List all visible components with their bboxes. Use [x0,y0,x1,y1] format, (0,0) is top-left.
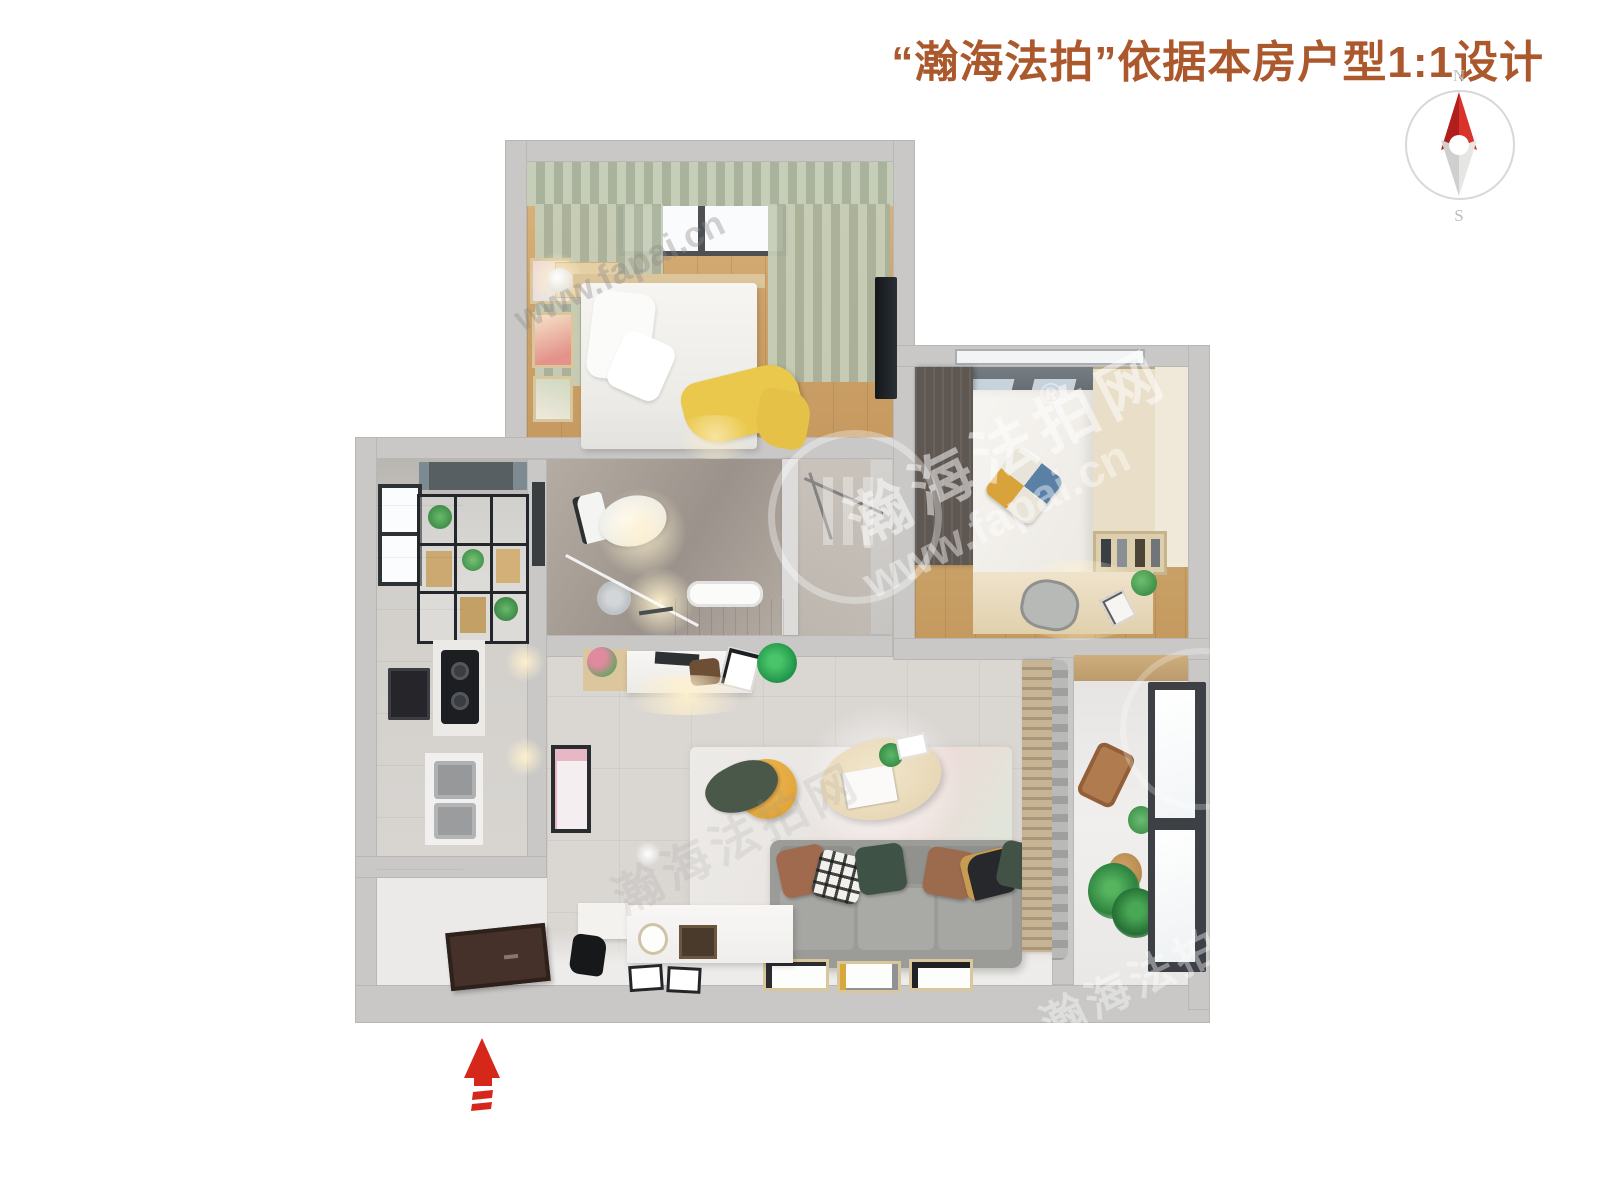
page: { "header": { "title": "“瀚海法拍”依据本房户型1:1设… [0,0,1600,1200]
shelf-plant [494,597,518,621]
toilet-bowl [594,489,672,554]
master-bedroom [505,140,915,459]
entry-door-mat [445,923,551,991]
shelf-plant [462,549,484,571]
kitchen-sink-basin [434,803,476,839]
kitchen-sink-basin [434,761,476,799]
bathroom-window [529,482,545,566]
leaning-frame [909,959,973,991]
burner [451,662,469,680]
entrance-arrow-bar [472,1090,493,1100]
throw-pillow-green [854,842,908,896]
emblem-column [843,477,853,545]
curtain-right-panel [768,204,890,382]
cooktop [441,650,479,724]
entrance-arrow-head [464,1038,500,1086]
vanity-basin [687,581,763,607]
wall-art [533,376,573,422]
living-room [527,635,1052,985]
bookshelf [1093,531,1167,575]
bed-throw-drape [752,386,813,452]
floor-frame-small [666,966,701,994]
floor-art [551,745,591,833]
built-in-oven [388,668,430,720]
wall-light [635,841,661,867]
floor-plan-rendering: www.fapai.cn 瀚海法拍网 ® www.fapai.cn 瀚海法拍网 … [0,0,1600,1200]
second-bedroom-window [955,349,1145,365]
burner [451,692,469,710]
sofa-seat-cushion [858,888,934,950]
window-pane [1155,830,1195,962]
desk-plant [1131,570,1157,596]
floor-frame-small [628,964,664,992]
shower-faucet [639,607,673,616]
books [1101,539,1111,567]
table-lamp [547,268,573,294]
emblem-column [863,477,873,545]
books [1135,539,1145,567]
books [1151,539,1160,567]
balcony-roller-blind [1022,660,1054,952]
leaning-frame [763,959,829,991]
door-handle-mark [504,954,518,959]
entrance-arrow-bar [471,1102,492,1111]
watermark-emblem-ring [768,430,942,604]
watermark-emblem-ring-right [1120,648,1282,810]
light-wardrobe [1093,367,1155,531]
side-table-plant [587,647,617,677]
kitchen-skylight [419,462,527,490]
desk-chair-living [689,658,722,687]
cabinet-inset-box [679,925,717,959]
shelf-divider [490,497,493,641]
curtain-rail [527,162,893,206]
books [1117,539,1127,567]
emblem-column [823,477,833,545]
wall-art [532,312,574,368]
desk-palm-plant [757,643,797,683]
shelf-wood-box [460,597,486,633]
leaning-frame [837,961,901,993]
floor-bag [568,933,607,977]
kitchen [355,437,547,878]
shelf-wood-box [496,549,520,583]
balcony-curtain-strip [1052,660,1068,960]
entrance-arrow-icon [452,1034,512,1114]
